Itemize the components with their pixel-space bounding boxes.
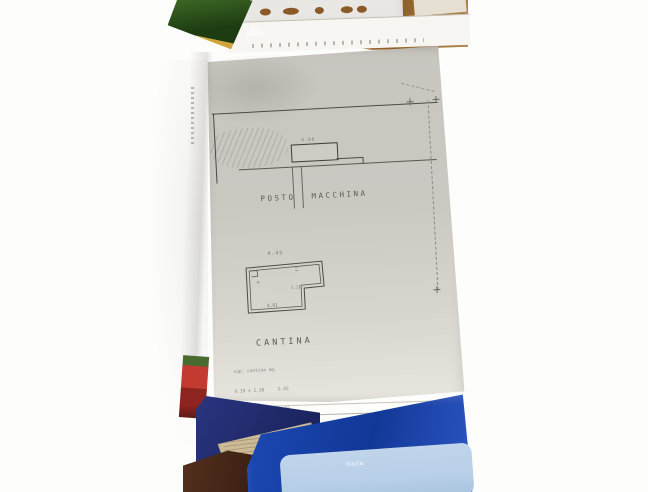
binder-hole bbox=[341, 6, 353, 13]
scan-smudge bbox=[205, 52, 329, 130]
survey-cross-mark bbox=[406, 98, 413, 105]
calc-row: sup. cantina mq. bbox=[233, 364, 337, 376]
dashed-diagonal bbox=[401, 83, 434, 92]
parking-rectangle bbox=[291, 142, 339, 162]
binder-hole bbox=[357, 6, 367, 13]
hatched-region bbox=[209, 126, 289, 170]
pillar-line bbox=[301, 166, 304, 208]
calc-row: 4.19 x 1.30 5.45 bbox=[234, 384, 338, 396]
folded-page-text bbox=[191, 86, 194, 144]
survey-cross-mark bbox=[433, 286, 440, 293]
plan-step-line bbox=[336, 157, 363, 159]
cantina-top-dimension: 4.45 bbox=[267, 250, 283, 257]
folder-label-text: Italia bbox=[346, 460, 364, 468]
binder-hole bbox=[315, 7, 324, 14]
survey-cross-mark bbox=[432, 96, 439, 103]
dashed-boundary-right bbox=[428, 100, 439, 290]
cantina-notch-dimension: 1.11 bbox=[291, 284, 301, 289]
floor-plan-drawing: 5.00 POSTO MACCHINA 4.45 ≡ 1.11 4.01 CAN… bbox=[205, 45, 463, 407]
pillar-line bbox=[292, 167, 295, 209]
cantina-label: CANTINA bbox=[256, 335, 336, 349]
posto-macchina-label: POSTO MACCHINA bbox=[260, 187, 390, 203]
parking-dimension: 5.00 bbox=[301, 136, 315, 142]
cantina-bottom-dimension: 4.01 bbox=[267, 304, 278, 310]
binder-hole bbox=[260, 8, 271, 15]
cantina-interior-mark: ≡ bbox=[257, 280, 260, 285]
binder-hole bbox=[283, 8, 299, 15]
desk-photo: 5.00 POSTO MACCHINA 4.45 ≡ 1.11 4.01 CAN… bbox=[0, 0, 648, 492]
